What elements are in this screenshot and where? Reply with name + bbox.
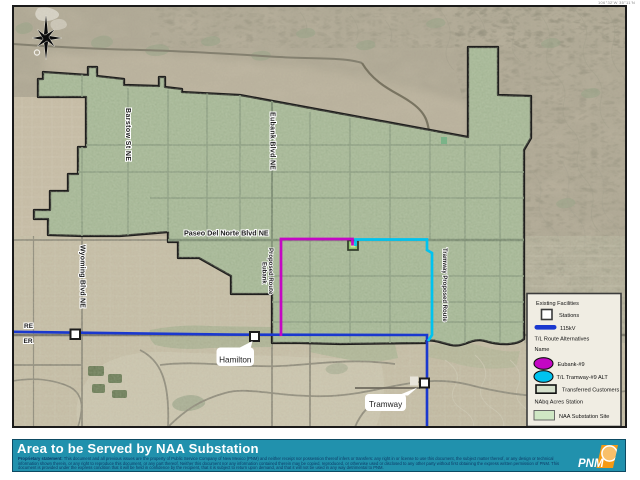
svg-text:Paseo Del Norte Blvd NE: Paseo Del Norte Blvd NE — [184, 229, 269, 238]
svg-text:Transferred Customers: Transferred Customers — [562, 388, 620, 394]
svg-text:Existing Facilities: Existing Facilities — [536, 301, 579, 307]
svg-text:RE: RE — [24, 323, 34, 330]
svg-text:Eubank-#9: Eubank-#9 — [558, 362, 585, 368]
svg-text:ER: ER — [24, 338, 33, 345]
svg-text:Stations: Stations — [559, 313, 579, 319]
svg-text:Eubank Blvd NE: Eubank Blvd NE — [269, 112, 276, 170]
svg-text:Barstow St NE: Barstow St NE — [124, 108, 131, 161]
svg-text:115kV: 115kV — [560, 326, 576, 332]
svg-text:Tramway: Tramway — [369, 400, 403, 409]
svg-text:Wyoming Blvd NE: Wyoming Blvd NE — [79, 245, 86, 308]
svg-text:Hamilton: Hamilton — [219, 356, 252, 365]
svg-text:Eubank: Eubank — [261, 262, 267, 284]
svg-text:Tramway Proposed Route: Tramway Proposed Route — [441, 248, 447, 322]
svg-text:T/L Route Alternatives: T/L Route Alternatives — [535, 337, 590, 343]
svg-text:Name: Name — [535, 347, 550, 353]
svg-text:PNM: PNM — [578, 458, 604, 470]
svg-text:T/L Tramway-#9 ALT: T/L Tramway-#9 ALT — [557, 375, 609, 381]
svg-text:NAA Substation Site: NAA Substation Site — [559, 414, 609, 420]
svg-text:Proposed Route: Proposed Route — [267, 248, 273, 295]
svg-text:NAbq Acres Station: NAbq Acres Station — [535, 400, 584, 406]
